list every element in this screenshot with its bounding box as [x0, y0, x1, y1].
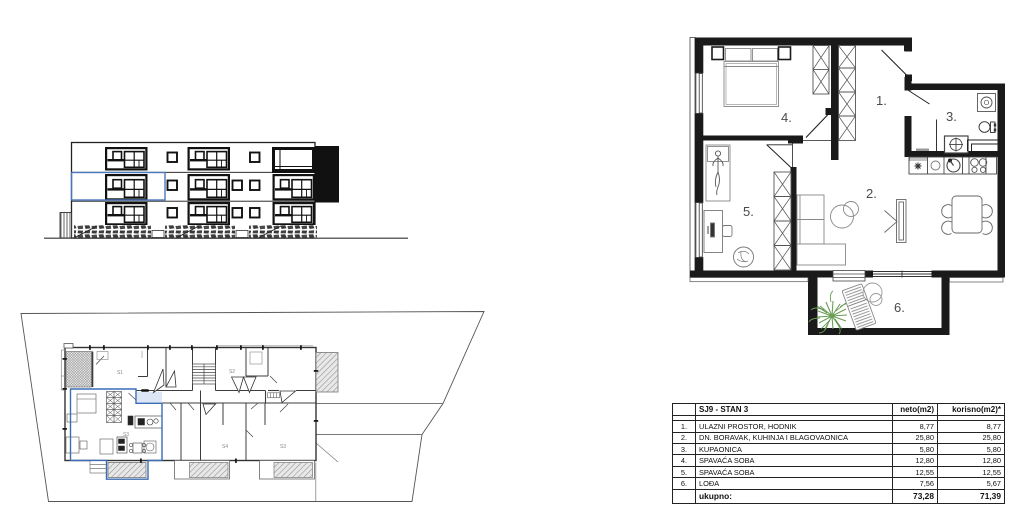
svg-text:5.: 5. — [743, 204, 754, 219]
svg-text:3.: 3. — [946, 109, 957, 124]
svg-text:2.: 2. — [866, 186, 877, 201]
svg-text:S3: S3 — [280, 444, 286, 450]
svg-text:4.: 4. — [781, 110, 792, 125]
svg-text:6.: 6. — [894, 300, 905, 315]
svg-text:S3: S3 — [123, 432, 129, 438]
svg-text:S2: S2 — [229, 369, 235, 375]
svg-text:S1: S1 — [117, 370, 123, 376]
svg-text:1.: 1. — [876, 93, 887, 108]
svg-text:S4: S4 — [222, 444, 228, 450]
